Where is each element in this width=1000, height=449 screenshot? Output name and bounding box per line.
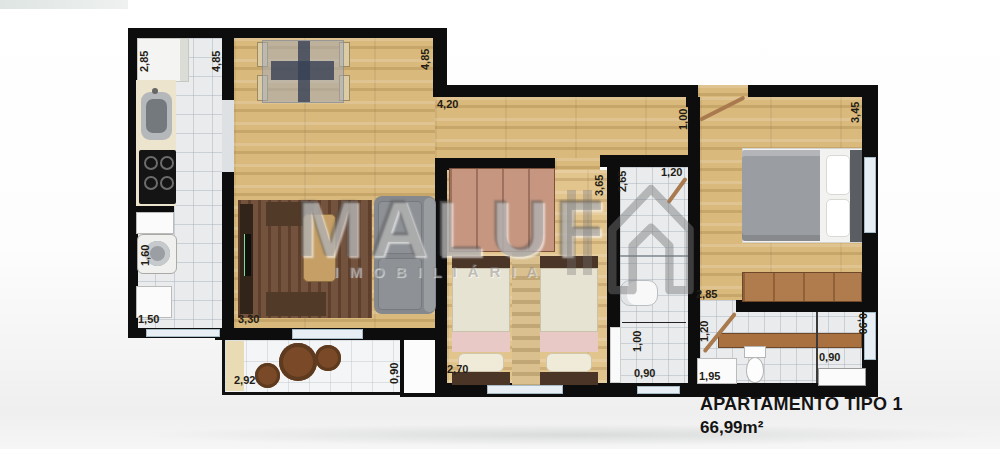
balcony-stool-2 [315, 345, 341, 371]
floor-plan-canvas: 2,85 4,85 4,85 4,20 1,00 3,45 3,65 2,65 … [0, 0, 1000, 449]
stove-burner-4 [160, 176, 174, 190]
dim-bedroom2-width: 2,70 [447, 364, 468, 375]
double-bed-headboard [850, 150, 862, 242]
double-bed-duvet [742, 150, 820, 241]
dim-balcony-width: 2,92 [234, 375, 255, 386]
utility-ledge-box [400, 333, 440, 397]
entry-door-gap-floor [698, 85, 748, 97]
single-bed-2-headboard [540, 372, 598, 385]
dim-ensuite-door: 1,20 [699, 321, 710, 342]
wall-kitchen-living [222, 28, 234, 330]
dim-bath-bottom: 0,90 [634, 368, 655, 379]
kitchen-sink-basin [146, 99, 167, 133]
bathroom1-dim-line [622, 322, 686, 323]
stove-burner-3 [144, 176, 158, 190]
single-bed-1-blanket [452, 332, 510, 352]
tv-screen [244, 234, 251, 276]
title-block: APARTAMENTO TIPO 1 66,99m² [700, 394, 903, 438]
wall-top-hall [443, 85, 686, 97]
bathroom1-window [637, 386, 680, 394]
apartment-area: 66,99m² [700, 418, 903, 438]
watermark-subtitle-text: IMOBILIÁRIA [334, 263, 548, 280]
ensuite-toilet-bowl [746, 357, 764, 383]
single-bed-2-pillow [546, 353, 592, 372]
top-left-gray-band [0, 0, 128, 9]
kitchen-pass-through [222, 100, 234, 172]
dim-entry-door: 1,00 [678, 109, 689, 130]
apartment-title: APARTAMENTO TIPO 1 [700, 394, 903, 415]
balcony-table [279, 343, 317, 381]
ensuite-counter [718, 333, 862, 348]
dim-living-top-depth: 4,85 [420, 49, 431, 70]
balcony-sliding-door [292, 329, 363, 339]
bathroom1-door-panel [610, 327, 621, 383]
dim-hall-width: 4,20 [437, 99, 458, 110]
wall-top-master [748, 85, 878, 97]
watermark-bar-2 [583, 190, 592, 275]
dim-kitchen-width: 2,85 [139, 51, 150, 72]
dim-service-depth: 1,50 [138, 314, 159, 325]
hallway-floor [435, 97, 688, 158]
dim-kitchen-depth: 4,85 [211, 51, 222, 72]
dim-balcony-depth: 0,90 [389, 363, 400, 384]
service-cabinet [136, 212, 174, 234]
single-bed-2 [540, 268, 598, 332]
double-bed-pillow-2 [826, 199, 850, 237]
bedroom2-window [487, 385, 563, 394]
dim-master-width: 2,85 [696, 289, 717, 300]
dim-bath-inner: 1,00 [632, 331, 643, 352]
dim-ensuite-window: 0,90 [857, 313, 868, 334]
dim-living-width: 3,30 [238, 314, 259, 325]
master-window [864, 157, 876, 233]
side-table-bottom [266, 292, 326, 316]
dining-table-cross-h [271, 61, 334, 80]
balcony-stool-1 [255, 363, 280, 388]
service-window [146, 329, 220, 337]
house-outline-icon [605, 172, 697, 298]
dim-master-depth: 3,45 [850, 102, 861, 123]
master-dresser [742, 272, 862, 302]
shower-tray [818, 368, 866, 386]
single-bed-2-blanket [540, 332, 598, 352]
dim-service-width: 1,60 [140, 245, 151, 266]
double-bed-pillow-1 [826, 155, 850, 195]
stove-burner-2 [160, 156, 174, 170]
stove-burner-1 [144, 156, 158, 170]
dim-ensuite-counter: 1,95 [699, 371, 720, 382]
dim-shower-width: 0,90 [819, 352, 840, 363]
bedroom2-door-gap-floor [555, 158, 600, 170]
watermark-bar-1 [567, 190, 576, 275]
wall-top-left [128, 28, 447, 38]
kitchen-faucet [152, 88, 158, 94]
watermark-brand-text: MALUF [296, 183, 611, 275]
